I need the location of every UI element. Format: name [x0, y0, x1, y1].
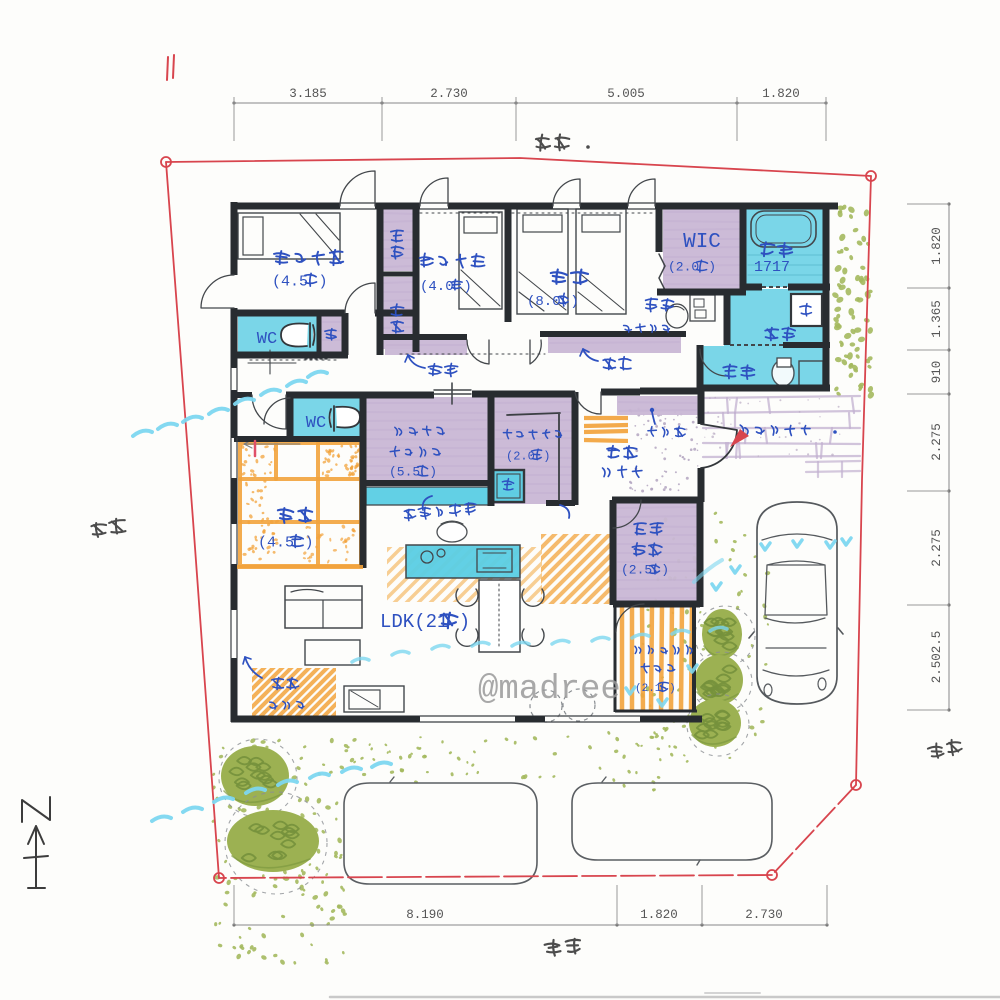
svg-text:1.365: 1.365 [930, 300, 944, 338]
svg-text:): ) [429, 465, 437, 480]
svg-text:): ) [543, 449, 550, 463]
svg-text:): ) [669, 683, 676, 695]
svg-text:2.730: 2.730 [745, 908, 783, 922]
svg-text:(4.0: (4.0 [420, 279, 454, 295]
svg-text:): ) [708, 260, 716, 275]
svg-text:): ) [570, 294, 578, 310]
svg-text:WC: WC [257, 330, 277, 349]
svg-text:): ) [463, 279, 471, 295]
svg-text:(4.5: (4.5 [258, 534, 294, 551]
svg-text:): ) [459, 611, 470, 633]
svg-text:2.275: 2.275 [930, 529, 944, 567]
svg-text:(2.1: (2.1 [635, 683, 662, 695]
svg-text:@madree: @madree [478, 671, 621, 709]
svg-text:3.185: 3.185 [289, 87, 327, 101]
svg-text:1.820: 1.820 [930, 227, 944, 265]
svg-text:8.190: 8.190 [406, 908, 444, 922]
svg-text:5.005: 5.005 [607, 87, 645, 101]
svg-text:910: 910 [930, 361, 944, 384]
svg-text:1.820: 1.820 [762, 87, 800, 101]
svg-text:2.275: 2.275 [930, 423, 944, 461]
svg-text:LDK(21: LDK(21 [380, 611, 448, 633]
svg-text:): ) [319, 273, 328, 290]
svg-text:(2.0: (2.0 [668, 260, 699, 275]
svg-text:(8.0: (8.0 [527, 294, 561, 310]
svg-text:(2.5: (2.5 [621, 563, 652, 578]
svg-text:2.502.5: 2.502.5 [930, 631, 944, 684]
svg-text:WIC: WIC [683, 231, 721, 254]
svg-text:2.730: 2.730 [430, 87, 468, 101]
svg-text:1.820: 1.820 [640, 908, 678, 922]
svg-text:1717: 1717 [754, 259, 790, 276]
svg-text:(4.5: (4.5 [272, 273, 308, 290]
svg-text:): ) [305, 534, 314, 551]
svg-text:(5.5: (5.5 [389, 465, 420, 480]
svg-text:(2.0: (2.0 [506, 449, 535, 463]
svg-text:WC: WC [306, 414, 326, 433]
svg-text:): ) [661, 563, 669, 578]
